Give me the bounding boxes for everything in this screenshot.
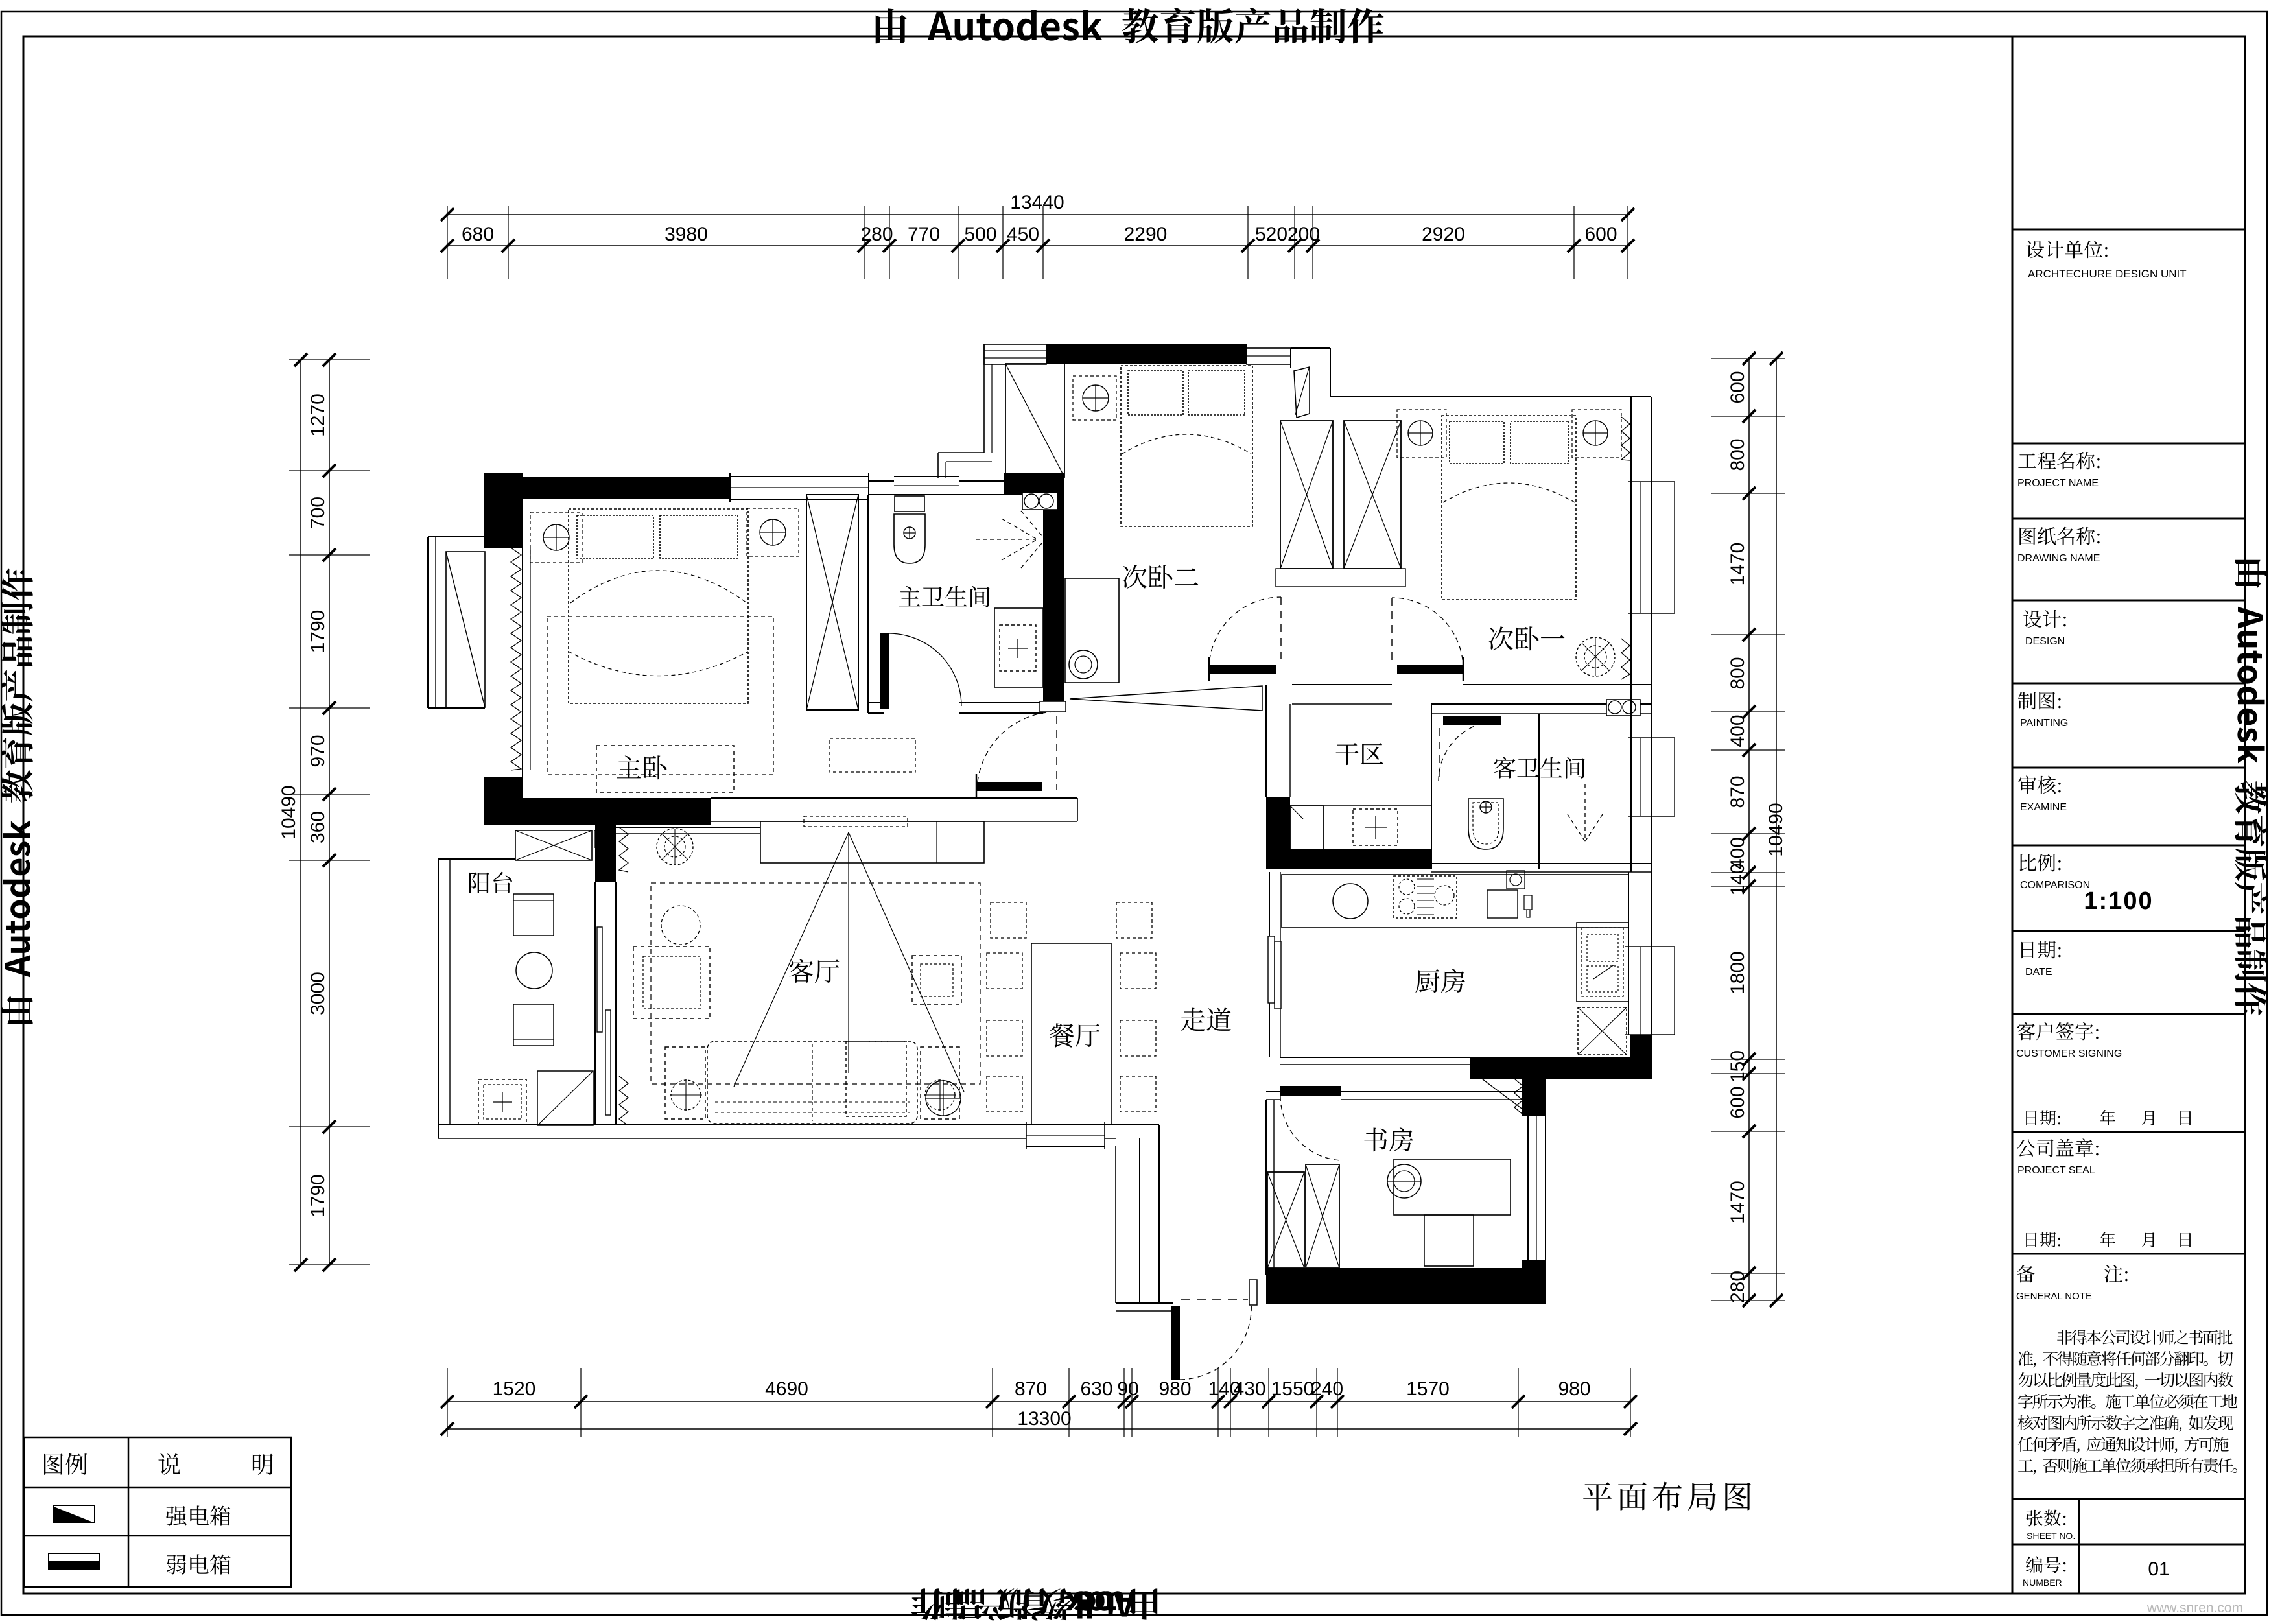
svg-text:1570: 1570 <box>1406 1378 1450 1400</box>
svg-text:140: 140 <box>1727 863 1748 895</box>
svg-text:500: 500 <box>964 224 996 245</box>
svg-text:GENERAL NOTE: GENERAL NOTE <box>2016 1291 2092 1302</box>
svg-text:PROJECT SEAL: PROJECT SEAL <box>2017 1165 2095 1176</box>
svg-text:10490: 10490 <box>1765 803 1787 856</box>
svg-text:CUSTOMER SIGNING: CUSTOMER SIGNING <box>2016 1048 2122 1059</box>
svg-text:ARCHTECHURE DESIGN UNIT: ARCHTECHURE DESIGN UNIT <box>2028 268 2187 280</box>
svg-text:240: 240 <box>1311 1378 1343 1400</box>
svg-text:90: 90 <box>1117 1378 1138 1400</box>
svg-text:DESIGN: DESIGN <box>2025 636 2065 647</box>
svg-text:630: 630 <box>1080 1378 1112 1400</box>
svg-text:1550: 1550 <box>1271 1378 1315 1400</box>
svg-text:4690: 4690 <box>765 1378 808 1400</box>
svg-text:2920: 2920 <box>1422 224 1465 245</box>
svg-text:520: 520 <box>1255 224 1287 245</box>
svg-text:430: 430 <box>1233 1378 1265 1400</box>
svg-text:1790: 1790 <box>307 610 329 653</box>
svg-text:EXAMINE: EXAMINE <box>2020 802 2067 813</box>
svg-text:3000: 3000 <box>307 972 329 1015</box>
svg-text:150: 150 <box>1727 1050 1748 1083</box>
svg-text:www.snren.com: www.snren.com <box>2146 1601 2243 1616</box>
svg-text:800: 800 <box>1727 438 1748 471</box>
svg-text:1:100: 1:100 <box>2084 888 2153 915</box>
svg-text:600: 600 <box>1584 224 1617 245</box>
svg-text:800: 800 <box>1727 657 1748 689</box>
svg-text:PAINTING: PAINTING <box>2020 718 2068 729</box>
svg-text:360: 360 <box>307 811 329 843</box>
svg-text:970: 970 <box>307 735 329 767</box>
svg-text:980: 980 <box>1558 1378 1590 1400</box>
svg-text:980: 980 <box>1158 1378 1191 1400</box>
svg-text:DRAWING NAME: DRAWING NAME <box>2017 553 2100 564</box>
svg-text:450: 450 <box>1007 224 1039 245</box>
svg-text:13440: 13440 <box>1010 192 1064 213</box>
svg-text:1470: 1470 <box>1727 1181 1748 1224</box>
svg-text:13300: 13300 <box>1017 1408 1071 1430</box>
svg-text:PROJECT NAME: PROJECT NAME <box>2017 478 2099 489</box>
svg-text:1520: 1520 <box>493 1378 536 1400</box>
svg-text:280: 280 <box>860 224 893 245</box>
svg-text:3980: 3980 <box>664 224 708 245</box>
svg-text:200: 200 <box>1287 224 1320 245</box>
svg-text:600: 600 <box>1727 1086 1748 1118</box>
svg-text:600: 600 <box>1727 371 1748 403</box>
svg-text:1790: 1790 <box>307 1174 329 1218</box>
svg-text:280: 280 <box>1727 1271 1748 1303</box>
svg-text:COMPARISON: COMPARISON <box>2020 880 2090 891</box>
svg-text:770: 770 <box>908 224 940 245</box>
svg-text:2290: 2290 <box>1124 224 1168 245</box>
svg-text:870: 870 <box>1015 1378 1047 1400</box>
svg-text:700: 700 <box>307 497 329 529</box>
svg-text:400: 400 <box>1727 714 1748 747</box>
svg-text:DATE: DATE <box>2025 967 2052 978</box>
svg-text:SHEET NO.: SHEET NO. <box>2027 1531 2075 1541</box>
svg-text:10490: 10490 <box>278 785 300 839</box>
svg-text:1800: 1800 <box>1727 951 1748 994</box>
svg-text:680: 680 <box>462 224 494 245</box>
svg-text:NUMBER: NUMBER <box>2023 1577 2062 1588</box>
svg-text:1270: 1270 <box>307 394 329 437</box>
svg-text:01: 01 <box>2148 1559 2169 1580</box>
svg-text:1470: 1470 <box>1727 543 1748 586</box>
svg-text:870: 870 <box>1727 775 1748 808</box>
